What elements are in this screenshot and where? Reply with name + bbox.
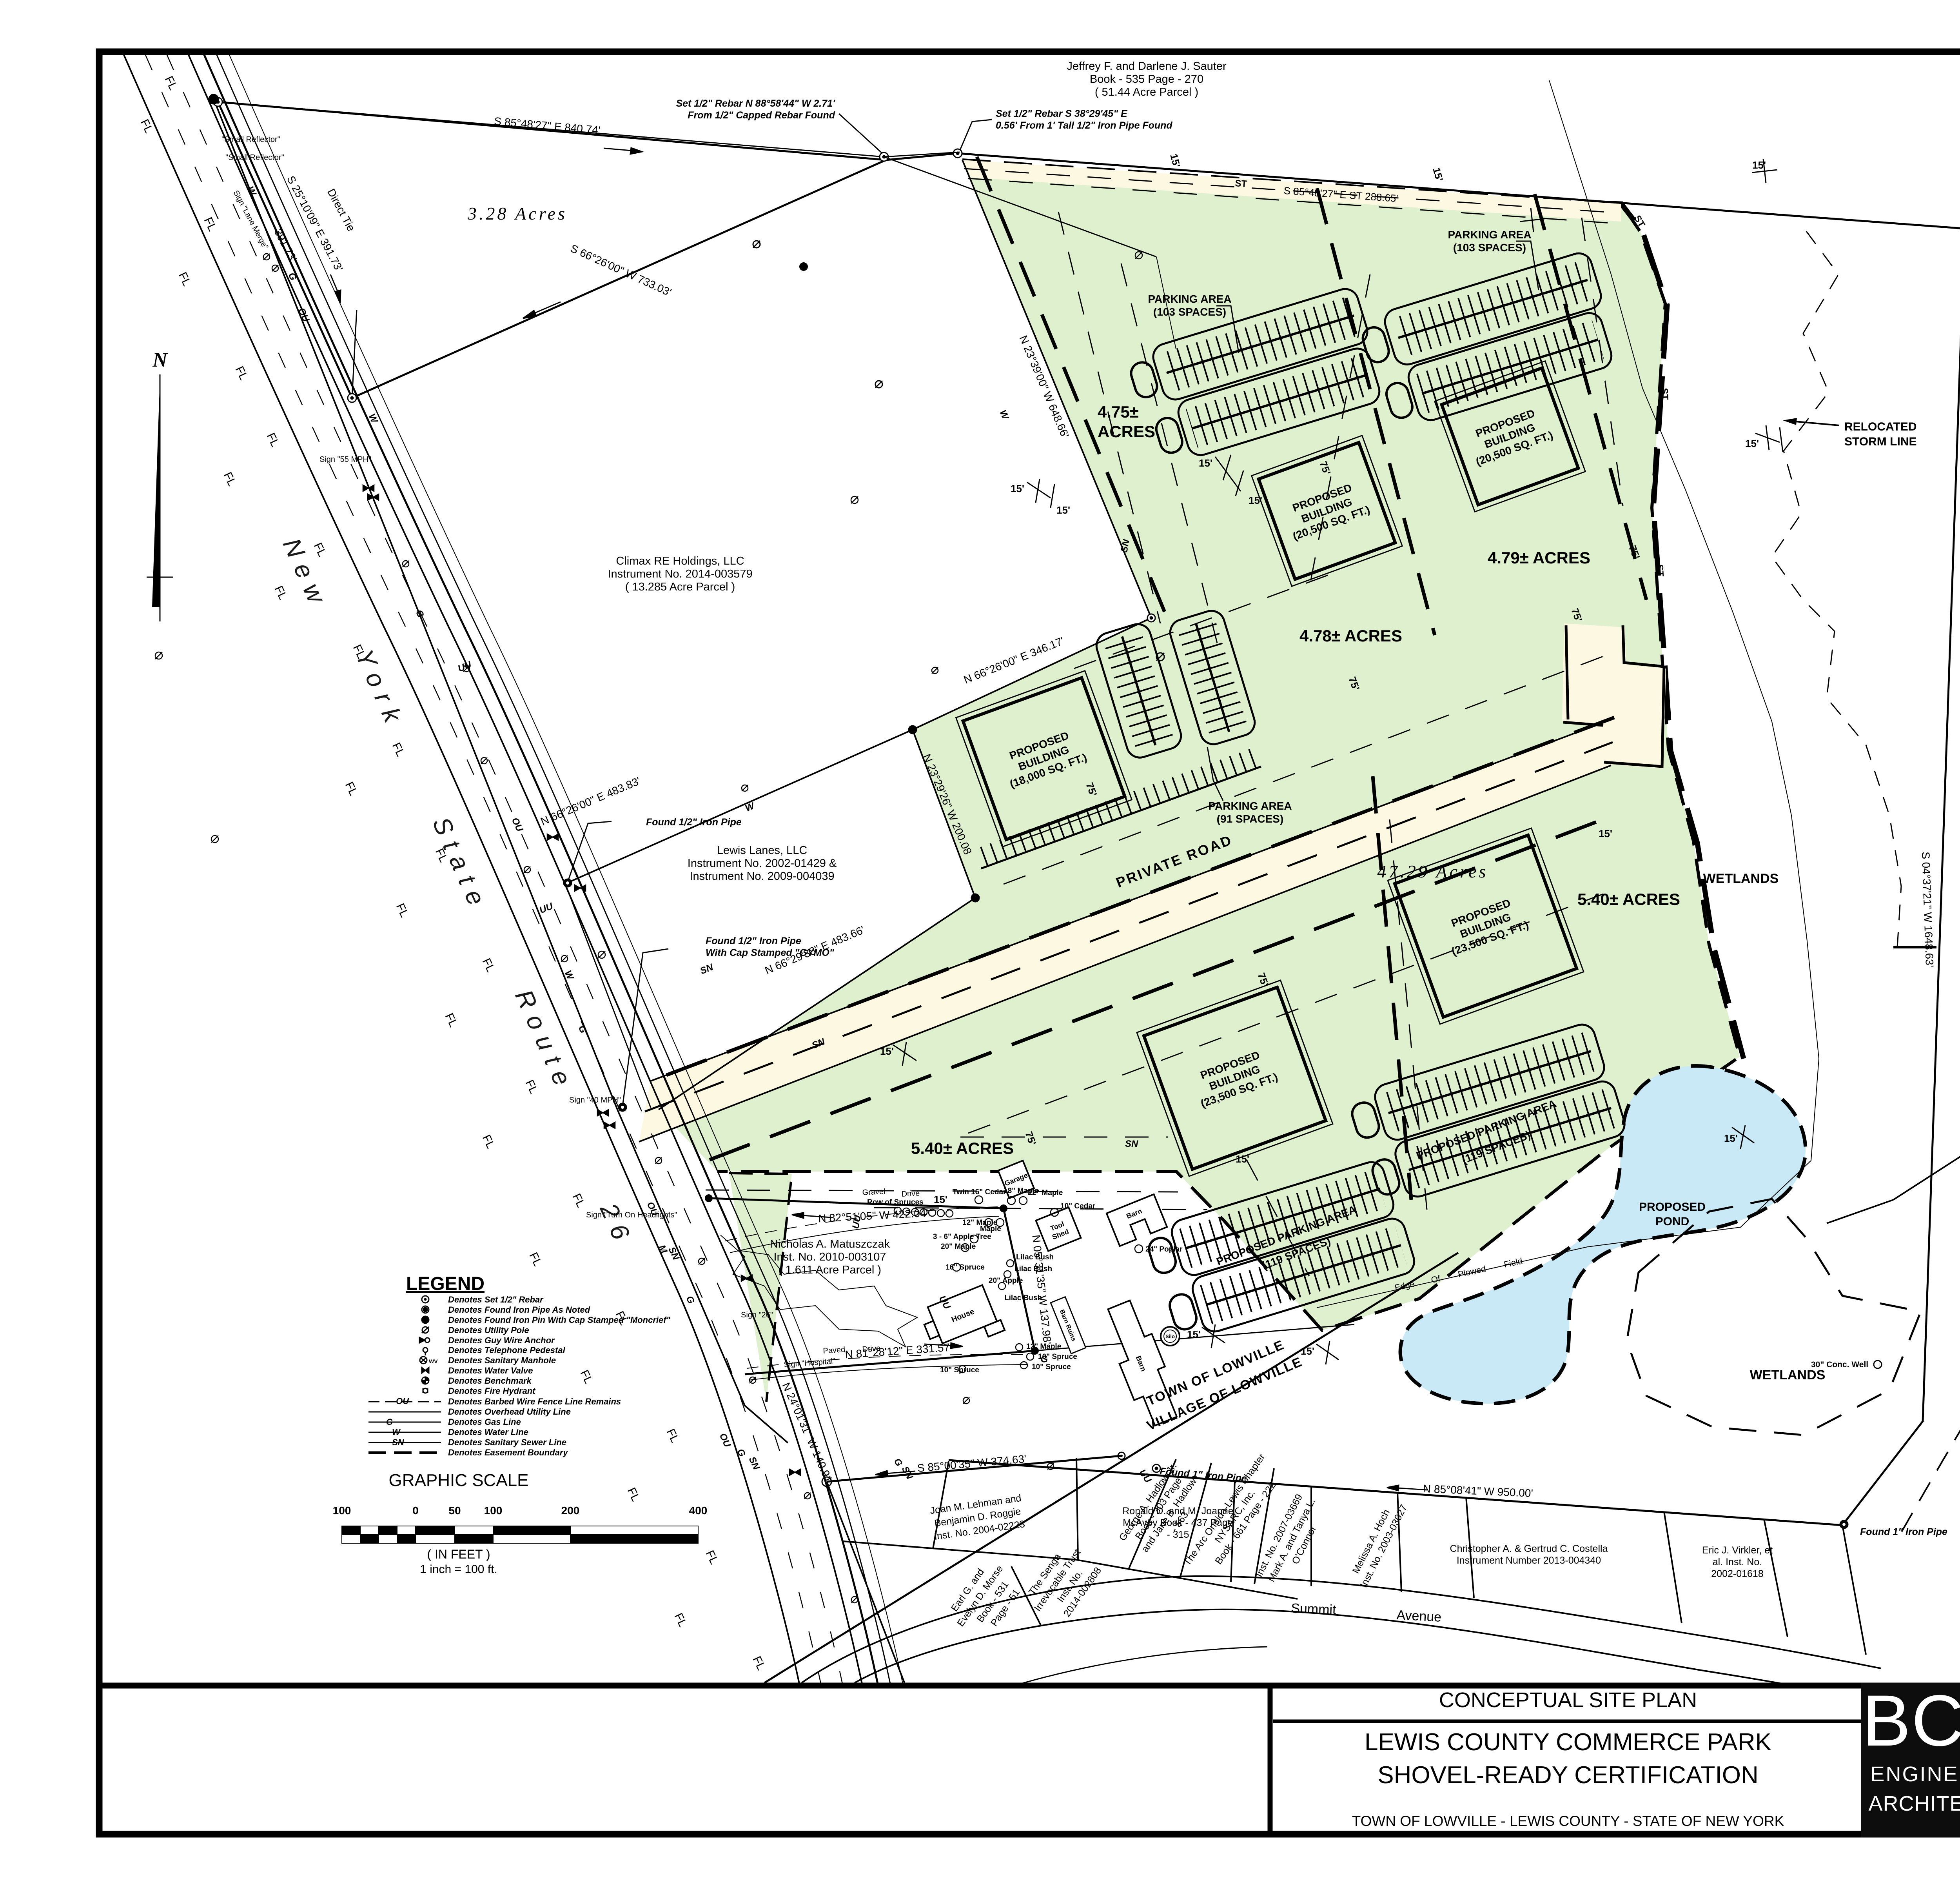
svg-text:G: G bbox=[386, 1417, 393, 1427]
svg-text:"Small Reflector": "Small Reflector" bbox=[221, 135, 280, 144]
svg-text:Found 1/2" Iron Pipe: Found 1/2" Iron Pipe bbox=[706, 936, 801, 946]
svg-text:Denotes Set 1/2" Rebar: Denotes Set 1/2" Rebar bbox=[448, 1295, 544, 1304]
svg-text:LEWIS COUNTY COMMERCE PARK: LEWIS COUNTY COMMERCE PARK bbox=[1365, 1729, 1771, 1756]
svg-text:LEGEND: LEGEND bbox=[406, 1273, 485, 1294]
svg-text:15': 15' bbox=[1236, 1153, 1249, 1165]
svg-text:30" Conc. Well: 30" Conc. Well bbox=[1811, 1360, 1868, 1369]
svg-text:Denotes Easement Boundary: Denotes Easement Boundary bbox=[448, 1448, 568, 1457]
svg-text:From 1/2" Capped Rebar Found: From 1/2" Capped Rebar Found bbox=[688, 110, 835, 121]
svg-text:4.78± ACRES: 4.78± ACRES bbox=[1299, 627, 1402, 645]
svg-text:Paved: Paved bbox=[823, 1345, 846, 1355]
svg-text:15': 15' bbox=[1056, 504, 1070, 516]
svg-text:Sign "26": Sign "26" bbox=[741, 1311, 773, 1319]
svg-text:SHOVEL-READY CERTIFICATION: SHOVEL-READY CERTIFICATION bbox=[1377, 1762, 1759, 1789]
svg-text:Denotes Found Iron Pin With Ca: Denotes Found Iron Pin With Cap Stamped … bbox=[448, 1315, 671, 1325]
svg-text:SN: SN bbox=[1125, 1139, 1138, 1149]
svg-text:Book - 535 Page - 270: Book - 535 Page - 270 bbox=[1090, 73, 1203, 85]
svg-text:50: 50 bbox=[448, 1504, 461, 1517]
svg-text:100: 100 bbox=[333, 1504, 351, 1517]
svg-text:WETLANDS: WETLANDS bbox=[1750, 1368, 1826, 1382]
svg-text:47.29 Acres: 47.29 Acres bbox=[1377, 861, 1488, 881]
svg-text:10" Spruce: 10" Spruce bbox=[940, 1366, 979, 1374]
svg-text:400: 400 bbox=[689, 1504, 708, 1517]
svg-text:- 315: - 315 bbox=[1167, 1529, 1189, 1540]
svg-text:20" Apple: 20" Apple bbox=[989, 1277, 1023, 1285]
svg-text:Sign "55 MPH": Sign "55 MPH" bbox=[319, 455, 371, 464]
svg-text:4.75±: 4.75± bbox=[1098, 403, 1139, 421]
svg-text:Gravel: Gravel bbox=[862, 1187, 886, 1197]
svg-text:( IN FEET ): ( IN FEET ) bbox=[427, 1547, 490, 1561]
svg-text:BCA: BCA bbox=[1862, 1680, 1960, 1761]
svg-text:Denotes Telephone Pedestal: Denotes Telephone Pedestal bbox=[448, 1345, 566, 1355]
svg-text:ARCHITECTS: ARCHITECTS bbox=[1868, 1792, 1960, 1815]
svg-text:W: W bbox=[392, 1427, 401, 1437]
svg-text:Denotes Fire Hydrant: Denotes Fire Hydrant bbox=[448, 1386, 536, 1396]
svg-text:15': 15' bbox=[1745, 438, 1759, 449]
svg-text:0.56' From 1' Tall 1/2" Iron P: 0.56' From 1' Tall 1/2" Iron Pipe Found bbox=[996, 120, 1172, 131]
svg-text:200: 200 bbox=[561, 1504, 580, 1517]
svg-text:TOWN OF LOWVILLE - LEWIS COUNT: TOWN OF LOWVILLE - LEWIS COUNTY - STATE … bbox=[1352, 1813, 1784, 1829]
svg-text:( 51.44 Acre Parcel ): ( 51.44 Acre Parcel ) bbox=[1095, 86, 1198, 98]
svg-text:Instrument No. 2002-01429 &: Instrument No. 2002-01429 & bbox=[688, 857, 837, 870]
svg-text:al. Inst. No.: al. Inst. No. bbox=[1713, 1557, 1762, 1568]
svg-text:Sign "40 MPH": Sign "40 MPH" bbox=[569, 1096, 621, 1104]
svg-text:McAvoy Book - 437 Page: McAvoy Book - 437 Page bbox=[1123, 1517, 1233, 1528]
svg-text:20" Maple: 20" Maple bbox=[941, 1243, 976, 1251]
svg-text:Maple: Maple bbox=[980, 1225, 1001, 1233]
svg-text:15': 15' bbox=[1199, 457, 1212, 469]
svg-text:Denotes Utility Pole: Denotes Utility Pole bbox=[448, 1325, 529, 1335]
svg-text:3 - 6" Apple Tree: 3 - 6" Apple Tree bbox=[933, 1233, 991, 1241]
svg-text:Sign "Turn On Headlights": Sign "Turn On Headlights" bbox=[586, 1211, 677, 1219]
svg-text:12" Maple: 12" Maple bbox=[1028, 1189, 1063, 1197]
svg-text:Silo: Silo bbox=[1165, 1333, 1175, 1339]
svg-text:( 13.285 Acre Parcel ): ( 13.285 Acre Parcel ) bbox=[625, 581, 735, 593]
svg-text:1 inch = 100 ft.: 1 inch = 100 ft. bbox=[420, 1563, 497, 1576]
svg-text:Instrument No. 2014-003579: Instrument No. 2014-003579 bbox=[608, 568, 752, 580]
svg-text:15': 15' bbox=[934, 1194, 947, 1205]
svg-text:( 1.611 Acre Parcel ): ( 1.611 Acre Parcel ) bbox=[779, 1264, 881, 1276]
svg-text:Denotes Water Valve: Denotes Water Valve bbox=[448, 1366, 533, 1375]
svg-text:Denotes Found Iron Pipe As Not: Denotes Found Iron Pipe As Noted bbox=[448, 1305, 590, 1315]
svg-text:0: 0 bbox=[412, 1504, 419, 1517]
svg-text:Lewis Lanes, LLC: Lewis Lanes, LLC bbox=[717, 844, 808, 857]
svg-text:STORM LINE: STORM LINE bbox=[1844, 435, 1916, 448]
svg-text:Found 1/2" Iron Pipe: Found 1/2" Iron Pipe bbox=[646, 817, 742, 828]
svg-text:Set 1/2" Rebar S 38°29'45" E: Set 1/2" Rebar S 38°29'45" E bbox=[996, 108, 1128, 119]
svg-text:PARKING AREA: PARKING AREA bbox=[1448, 229, 1531, 241]
svg-text:Denotes Sanitary Sewer Line: Denotes Sanitary Sewer Line bbox=[448, 1437, 566, 1447]
svg-text:(103 SPACES): (103 SPACES) bbox=[1153, 306, 1226, 318]
svg-text:Denotes Water Line: Denotes Water Line bbox=[448, 1427, 528, 1437]
svg-text:Eric J. Virkler, et: Eric J. Virkler, et bbox=[1702, 1545, 1773, 1556]
svg-text:RELOCATED: RELOCATED bbox=[1844, 420, 1916, 433]
svg-text:4.79± ACRES: 4.79± ACRES bbox=[1488, 549, 1590, 567]
svg-text:3.28 Acres: 3.28 Acres bbox=[467, 203, 567, 223]
svg-text:Found 1" Iron Pipe: Found 1" Iron Pipe bbox=[1860, 1526, 1947, 1537]
svg-text:Twin 16" Cedar: Twin 16" Cedar bbox=[953, 1188, 1006, 1196]
svg-text:Denotes Overhead Utility Line: Denotes Overhead Utility Line bbox=[448, 1407, 571, 1417]
svg-text:Avenue: Avenue bbox=[1396, 1608, 1442, 1625]
svg-text:CONCEPTUAL SITE PLAN: CONCEPTUAL SITE PLAN bbox=[1439, 1688, 1697, 1712]
svg-text:SN: SN bbox=[392, 1437, 405, 1447]
svg-text:POND: POND bbox=[1655, 1215, 1690, 1228]
svg-text:Denotes Guy Wire Anchor: Denotes Guy Wire Anchor bbox=[448, 1335, 555, 1345]
svg-text:Drive: Drive bbox=[862, 1344, 881, 1354]
svg-text:G: G bbox=[1040, 1354, 1049, 1365]
svg-text:15': 15' bbox=[880, 1045, 894, 1057]
svg-text:Inst. No. 2010-003107: Inst. No. 2010-003107 bbox=[774, 1251, 886, 1263]
svg-text:(103 SPACES): (103 SPACES) bbox=[1453, 242, 1526, 254]
svg-text:2002-01618: 2002-01618 bbox=[1711, 1568, 1763, 1579]
svg-text:10" Spruce: 10" Spruce bbox=[1032, 1363, 1071, 1371]
svg-text:ENGINEERS: ENGINEERS bbox=[1870, 1762, 1960, 1786]
svg-text:15': 15' bbox=[1301, 1345, 1314, 1357]
svg-text:5.40± ACRES: 5.40± ACRES bbox=[911, 1139, 1014, 1157]
svg-text:ACRES: ACRES bbox=[1098, 422, 1155, 441]
svg-text:ST: ST bbox=[1654, 564, 1666, 577]
svg-text:Christopher A. & Gertrud C. Co: Christopher A. & Gertrud C. Costella bbox=[1450, 1543, 1608, 1554]
svg-text:Denotes Benchmark: Denotes Benchmark bbox=[448, 1376, 532, 1386]
svg-text:OU: OU bbox=[396, 1396, 409, 1406]
svg-text:5.40± ACRES: 5.40± ACRES bbox=[1577, 890, 1680, 908]
svg-text:15': 15' bbox=[1011, 483, 1024, 494]
svg-text:ST: ST bbox=[1235, 178, 1248, 189]
svg-text:"Small Reflector": "Small Reflector" bbox=[225, 153, 284, 162]
svg-text:100: 100 bbox=[484, 1504, 503, 1517]
svg-text:Nicholas A. Matuszczak: Nicholas A. Matuszczak bbox=[770, 1238, 890, 1250]
svg-text:Climax RE Holdings, LLC: Climax RE Holdings, LLC bbox=[616, 555, 744, 567]
svg-text:PARKING AREA: PARKING AREA bbox=[1148, 293, 1231, 305]
svg-text:Row of Spruces: Row of Spruces bbox=[867, 1198, 924, 1206]
svg-text:Drive: Drive bbox=[901, 1189, 920, 1199]
svg-text:15': 15' bbox=[1724, 1132, 1738, 1144]
svg-text:Instrument Number 2013-004340: Instrument Number 2013-004340 bbox=[1457, 1555, 1601, 1566]
svg-text:Summit: Summit bbox=[1291, 1601, 1337, 1617]
svg-text:Denotes Gas Line: Denotes Gas Line bbox=[448, 1417, 521, 1427]
svg-text:PARKING AREA: PARKING AREA bbox=[1208, 800, 1292, 812]
svg-text:Ronald D. and M. Joanne: Ronald D. and M. Joanne bbox=[1122, 1506, 1234, 1517]
svg-text:15': 15' bbox=[1187, 1328, 1201, 1340]
svg-text:15': 15' bbox=[1599, 828, 1612, 839]
svg-text:ST: ST bbox=[1659, 388, 1670, 400]
svg-text:Instrument No. 2009-004039: Instrument No. 2009-004039 bbox=[690, 870, 834, 883]
svg-text:Jeffrey F. and Darlene J. Saut: Jeffrey F. and Darlene J. Sauter bbox=[1067, 60, 1227, 73]
svg-text:PROPOSED: PROPOSED bbox=[1639, 1201, 1706, 1213]
svg-text:Denotes Barbed Wire Fence Line: Denotes Barbed Wire Fence Line Remains bbox=[448, 1397, 621, 1406]
svg-text:WV: WV bbox=[429, 1358, 438, 1364]
svg-text:(91 SPACES): (91 SPACES) bbox=[1217, 813, 1284, 825]
svg-text:WETLANDS: WETLANDS bbox=[1703, 871, 1779, 886]
svg-text:Denotes Sanitary Manhole: Denotes Sanitary Manhole bbox=[448, 1355, 556, 1365]
svg-text:GRAPHIC SCALE: GRAPHIC SCALE bbox=[389, 1471, 529, 1490]
svg-text:24" Poplar: 24" Poplar bbox=[1145, 1245, 1183, 1253]
svg-text:15': 15' bbox=[1249, 494, 1262, 506]
svg-text:Set 1/2" Rebar N 88°58'44" W: Set 1/2" Rebar N 88°58'44" W 2.71' bbox=[676, 98, 835, 109]
svg-text:N: N bbox=[152, 349, 168, 371]
svg-text:10" Cedar: 10" Cedar bbox=[1060, 1202, 1096, 1210]
svg-text:16" Spruce: 16" Spruce bbox=[946, 1263, 985, 1272]
